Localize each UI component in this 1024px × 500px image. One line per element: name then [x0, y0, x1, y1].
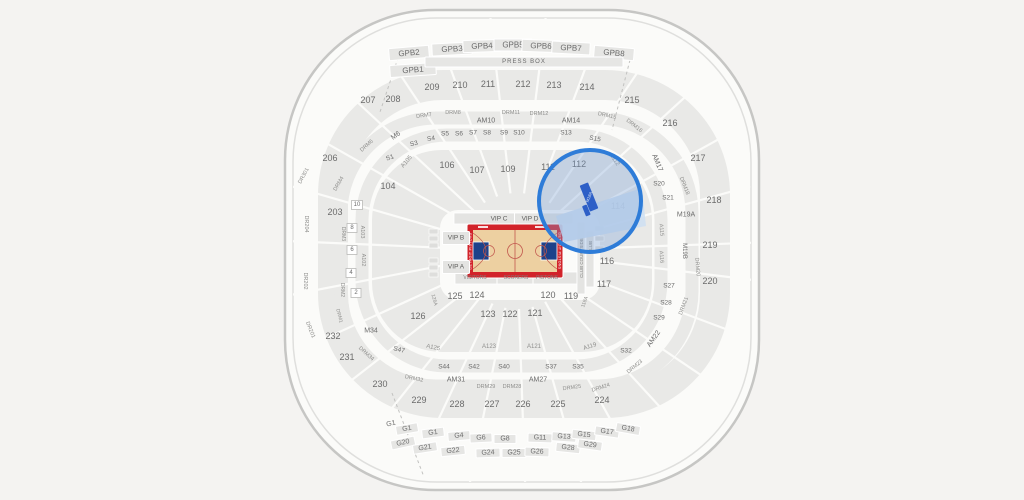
section-a115[interactable]: A115 — [657, 224, 664, 237]
section-s44[interactable]: S44 — [438, 364, 450, 371]
section-a103[interactable]: A103 — [359, 226, 365, 239]
seating-map-page: DETROIT PISTONSDETROIT PISTONSGPB2GPB3GP… — [0, 0, 1024, 500]
suite-mini-box[interactable] — [429, 243, 438, 248]
section-212[interactable]: 212 — [515, 79, 530, 89]
section-g1[interactable]: G1 — [428, 429, 438, 437]
section-206[interactable]: 206 — [322, 153, 337, 163]
section-231[interactable]: 231 — [339, 352, 354, 362]
suite-mini-box[interactable] — [429, 258, 438, 263]
section-g6[interactable]: G6 — [476, 434, 486, 441]
section-g25[interactable]: G25 — [507, 450, 520, 457]
section-a123[interactable]: A123 — [482, 344, 497, 350]
section-217[interactable]: 217 — [690, 153, 705, 163]
section-a116[interactable]: A116 — [657, 251, 664, 264]
section-g8[interactable]: G8 — [500, 436, 509, 443]
section-s29[interactable]: S29 — [653, 315, 665, 322]
section-s28[interactable]: S28 — [660, 300, 672, 307]
section-213[interactable]: 213 — [546, 80, 561, 90]
section-am27[interactable]: AM27 — [529, 377, 547, 384]
label-pistons: PISTONS — [536, 275, 559, 281]
section-122[interactable]: 122 — [502, 309, 517, 319]
section-104[interactable]: 104 — [380, 181, 395, 191]
section-vip-d[interactable]: VIP D — [522, 216, 539, 223]
section-210[interactable]: 210 — [452, 80, 467, 90]
section-s8[interactable]: S8 — [483, 130, 491, 137]
section-226[interactable]: 226 — [515, 399, 530, 409]
section-am10[interactable]: AM10 — [477, 118, 495, 125]
section-drm11[interactable]: DRM11 — [502, 110, 520, 116]
section-g4[interactable]: G4 — [454, 432, 464, 440]
section-10[interactable]: 10 — [354, 202, 361, 208]
section-dr202[interactable]: DR202 — [302, 272, 308, 289]
section-s40[interactable]: S40 — [498, 364, 510, 371]
section-am14[interactable]: AM14 — [562, 118, 580, 125]
section-m34[interactable]: M34 — [364, 328, 378, 335]
section-207[interactable]: 207 — [360, 95, 375, 105]
section-109[interactable]: 109 — [500, 164, 515, 174]
section-gpb2[interactable]: GPB2 — [398, 48, 421, 59]
section-s35[interactable]: S35 — [572, 364, 584, 371]
section-g11[interactable]: G11 — [534, 434, 547, 441]
section-a102[interactable]: A102 — [360, 254, 366, 267]
section-drm3[interactable]: DRM3 — [340, 227, 346, 241]
section-vip-c[interactable]: VIP C — [491, 216, 508, 223]
suite-mini-box[interactable] — [429, 265, 438, 270]
section-219[interactable]: 219 — [702, 240, 717, 250]
section-s7[interactable]: S7 — [469, 130, 477, 137]
court-paint-right — [541, 242, 557, 260]
section-drm2[interactable]: DRM2 — [339, 283, 345, 297]
section-216[interactable]: 216 — [662, 118, 677, 128]
section-g13[interactable]: G13 — [557, 433, 571, 441]
section-121[interactable]: 121 — [527, 308, 542, 318]
section-am31[interactable]: AM31 — [447, 377, 465, 384]
section-225[interactable]: 225 — [550, 399, 565, 409]
section-120[interactable]: 120 — [540, 290, 555, 300]
section-117[interactable]: 117 — [597, 279, 611, 289]
section-drm8[interactable]: DRM8 — [445, 110, 461, 116]
section-211[interactable]: 211 — [481, 79, 495, 89]
section-s42[interactable]: S42 — [468, 364, 480, 371]
section-s4[interactable]: S4 — [427, 135, 436, 143]
section-s20[interactable]: S20 — [653, 181, 665, 188]
section-s27[interactable]: S27 — [663, 283, 675, 290]
section-229[interactable]: 229 — [411, 395, 426, 405]
court-paint-left — [473, 242, 489, 260]
section-s21[interactable]: S21 — [662, 195, 674, 202]
section-s13[interactable]: S13 — [560, 130, 572, 137]
section-g24[interactable]: G24 — [481, 449, 495, 456]
section-232[interactable]: 232 — [325, 331, 340, 341]
section-107[interactable]: 107 — [469, 165, 484, 175]
section-s5[interactable]: S5 — [441, 131, 449, 138]
section-215[interactable]: 215 — [624, 95, 639, 105]
section-s37[interactable]: S37 — [545, 364, 557, 371]
section-a121[interactable]: A121 — [527, 344, 542, 350]
section-224[interactable]: 224 — [594, 395, 609, 405]
section-218[interactable]: 218 — [706, 195, 721, 205]
section-230[interactable]: 230 — [372, 379, 387, 389]
section-125[interactable]: 125 — [447, 291, 462, 301]
section-gpb4[interactable]: GPB4 — [471, 41, 493, 51]
suite-mini-box[interactable] — [429, 229, 438, 234]
section-drm29[interactable]: DRM29 — [477, 384, 496, 390]
section-s10[interactable]: S10 — [513, 130, 525, 137]
section-106[interactable]: 106 — [439, 160, 454, 170]
section-gpb3[interactable]: GPB3 — [441, 44, 463, 54]
section-214[interactable]: 214 — [579, 82, 594, 92]
label-visitors: VISITORS — [463, 275, 487, 281]
section-drm12[interactable]: DRM12 — [530, 111, 549, 117]
label-scorers: SCORERS — [504, 275, 529, 281]
section-drm28[interactable]: DRM28 — [503, 384, 522, 390]
section-228[interactable]: 228 — [449, 399, 464, 409]
section-gpb5[interactable]: GPB5 — [502, 41, 524, 50]
section-s6[interactable]: S6 — [455, 131, 463, 138]
section-s32[interactable]: S32 — [620, 348, 632, 355]
section-209[interactable]: 209 — [424, 82, 439, 92]
section-203[interactable]: 203 — [327, 207, 342, 217]
section-208[interactable]: 208 — [385, 94, 400, 104]
section-s9[interactable]: S9 — [500, 130, 508, 137]
seating-map: DETROIT PISTONSDETROIT PISTONSGPB2GPB3GP… — [0, 0, 1024, 500]
suite-mini-box[interactable] — [429, 236, 438, 241]
section-123[interactable]: 123 — [480, 309, 495, 319]
section-gpb1[interactable]: GPB1 — [402, 65, 424, 76]
section-g28[interactable]: G28 — [561, 444, 575, 452]
section-g15[interactable]: G15 — [577, 431, 591, 439]
section-vip-a[interactable]: VIP A — [448, 264, 465, 271]
section-124[interactable]: 124 — [469, 290, 484, 300]
section-m19a[interactable]: M19A — [677, 212, 696, 219]
section-227[interactable]: 227 — [484, 399, 499, 409]
section-vip-b[interactable]: VIP B — [448, 235, 465, 242]
section-gpb7[interactable]: GPB7 — [560, 43, 582, 53]
section-m19b[interactable]: M19B — [681, 243, 687, 259]
section-220[interactable]: 220 — [702, 276, 717, 286]
section-126[interactable]: 126 — [410, 311, 425, 321]
section-g26[interactable]: G26 — [530, 448, 544, 455]
section-119[interactable]: 119 — [564, 291, 578, 301]
section-g22[interactable]: G22 — [446, 447, 460, 455]
section-116[interactable]: 116 — [600, 256, 614, 266]
section-dr204[interactable]: DR204 — [303, 215, 309, 232]
suite-mini-box[interactable] — [429, 272, 438, 277]
section-gpb6[interactable]: GPB6 — [530, 41, 552, 51]
section-press-box[interactable]: PRESS BOX — [502, 59, 546, 65]
